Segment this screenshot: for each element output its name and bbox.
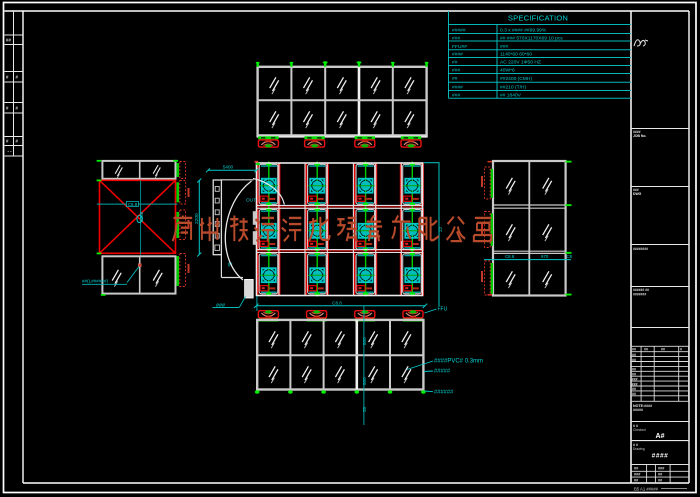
svg-text:SPECIFICATION: SPECIFICATION [508, 14, 568, 23]
svg-text:##: ## [632, 358, 636, 362]
svg-text:##210 (T/H): ##210 (T/H) [500, 84, 526, 90]
svg-text:##: ## [632, 348, 636, 352]
svg-text:#: # [680, 348, 682, 352]
svg-text:########: ######## [633, 247, 648, 251]
svg-text:Drawing: Drawing [633, 447, 645, 451]
svg-text:##: ## [6, 38, 11, 43]
svg-text:###: ### [634, 473, 641, 477]
svg-text:1140*60 60*60: 1140*60 60*60 [500, 52, 532, 58]
svg-text:JOB No.: JOB No. [633, 134, 646, 138]
svg-text:##: ## [452, 76, 458, 82]
svg-text:###: ### [632, 382, 638, 386]
svg-text:22: 22 [438, 226, 443, 232]
svg-text:###: ### [452, 92, 460, 98]
svg-text:###### ##: ###### ## [633, 288, 649, 292]
svg-text:FFU##: FFU## [452, 44, 467, 50]
svg-text:#####: ##### [633, 408, 643, 412]
svg-text:- -: - - [8, 149, 13, 154]
svg-text:##: ## [661, 348, 665, 352]
svg-text:##: ## [632, 373, 636, 377]
svg-text:5400: 5400 [223, 165, 234, 170]
svg-text:C8.8: C8.8 [505, 254, 515, 259]
svg-text:####: #### [452, 52, 463, 58]
svg-text:## ### 570X1170X69 10 pcs: ## ### 570X1170X69 10 pcs [500, 35, 563, 41]
svg-text:OUT: OUT [246, 198, 256, 204]
svg-text:DWG: DWG [633, 192, 642, 196]
svg-text:#######: ####### [633, 293, 646, 297]
svg-text:##(L######): ##(L######) [82, 279, 109, 284]
svg-text:##: ## [632, 387, 636, 391]
svg-text:##: ## [632, 353, 636, 357]
svg-text:0.3 x #### ##99.99%: 0.3 x #### ##99.99% [500, 28, 547, 34]
svg-text:FFU: FFU [438, 307, 448, 313]
svg-text:##: ## [644, 348, 648, 352]
svg-text:Checked: Checked [633, 428, 646, 432]
svg-text:###: ### [452, 67, 460, 73]
svg-text:##2400 (CMH): ##2400 (CMH) [500, 76, 532, 82]
svg-text:###: ### [658, 466, 665, 470]
svg-text:######: ###### [434, 389, 454, 395]
svg-text:####: #### [652, 453, 669, 460]
svg-text:800: 800 [362, 377, 367, 385]
svg-text:800: 800 [362, 337, 367, 345]
svg-text:##: ## [452, 59, 458, 65]
svg-text:AC 220V 1Φ50 HZ: AC 220V 1Φ50 HZ [500, 59, 541, 65]
svg-text:## 1840V: ## 1840V [500, 92, 522, 98]
svg-text:##: ## [632, 368, 636, 372]
svg-text:###: ### [452, 35, 460, 41]
svg-text:970: 970 [541, 254, 549, 259]
svg-text:2200: 2200 [194, 213, 200, 224]
svg-text:###: ### [500, 44, 508, 50]
svg-text:40W*6: 40W*6 [500, 67, 515, 73]
svg-text:##: ## [632, 392, 636, 396]
svg-text:35: 35 [362, 406, 367, 412]
svg-text:###: ### [632, 377, 638, 381]
svg-text:B5 A1 #####: B5 A1 ##### [634, 487, 659, 492]
svg-text:#####: ##### [452, 28, 466, 34]
svg-text:C8.8: C8.8 [128, 202, 138, 207]
svg-text:A#: A# [656, 433, 665, 440]
svg-text:####PVC# 0.3mm: ####PVC# 0.3mm [434, 359, 483, 365]
svg-text:C8: C8 [567, 254, 573, 259]
svg-text:#####: ##### [434, 369, 451, 375]
svg-text:####: #### [452, 84, 463, 90]
svg-text:C8.8: C8.8 [332, 300, 342, 305]
